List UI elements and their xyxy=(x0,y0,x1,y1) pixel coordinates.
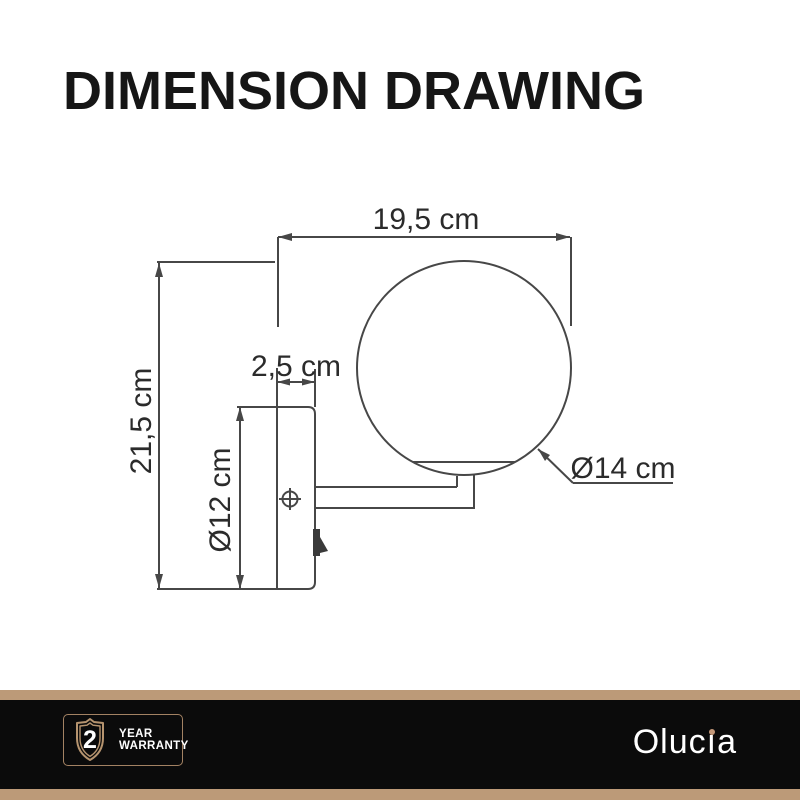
warranty-line2: WARRANTY xyxy=(119,740,189,752)
footer-accent-strip-top xyxy=(0,690,800,700)
switch-lever xyxy=(320,537,328,553)
globe-outline xyxy=(357,261,571,475)
brand-i-letter: ı xyxy=(707,722,717,762)
dim-height-label: 21,5 cm xyxy=(125,368,158,475)
dim-globe-label: Ø14 cm xyxy=(570,452,675,485)
brand-suffix: a xyxy=(717,723,737,761)
warranty-badge: 2 YEAR WARRANTY xyxy=(63,714,183,766)
dim-depth-label: 2,5 cm xyxy=(251,350,341,383)
arrow-icon xyxy=(556,233,570,241)
arrow-icon xyxy=(155,574,163,588)
warranty-line1: YEAR xyxy=(119,728,189,740)
warranty-text: YEAR WARRANTY xyxy=(119,728,189,752)
dim-width-label: 19,5 cm xyxy=(373,203,480,236)
warranty-years: 2 xyxy=(70,717,110,763)
dim-plate-label: Ø12 cm xyxy=(204,447,237,552)
footer: 2 YEAR WARRANTY Olucıa xyxy=(0,690,800,800)
arrow-icon xyxy=(236,575,244,589)
arrow-icon xyxy=(155,263,163,277)
arrow-icon xyxy=(236,407,244,421)
brand-prefix: Oluc xyxy=(633,723,707,761)
brand-logo: Olucıa xyxy=(633,722,737,762)
footer-accent-strip-bottom xyxy=(0,789,800,800)
switch-knob xyxy=(313,529,320,556)
dimension-drawing: 19,5 cm 21,5 cm 2,5 cm Ø12 cm Ø14 cm xyxy=(0,0,800,800)
warranty-shield: 2 xyxy=(70,717,110,763)
arrow-icon xyxy=(278,233,292,241)
